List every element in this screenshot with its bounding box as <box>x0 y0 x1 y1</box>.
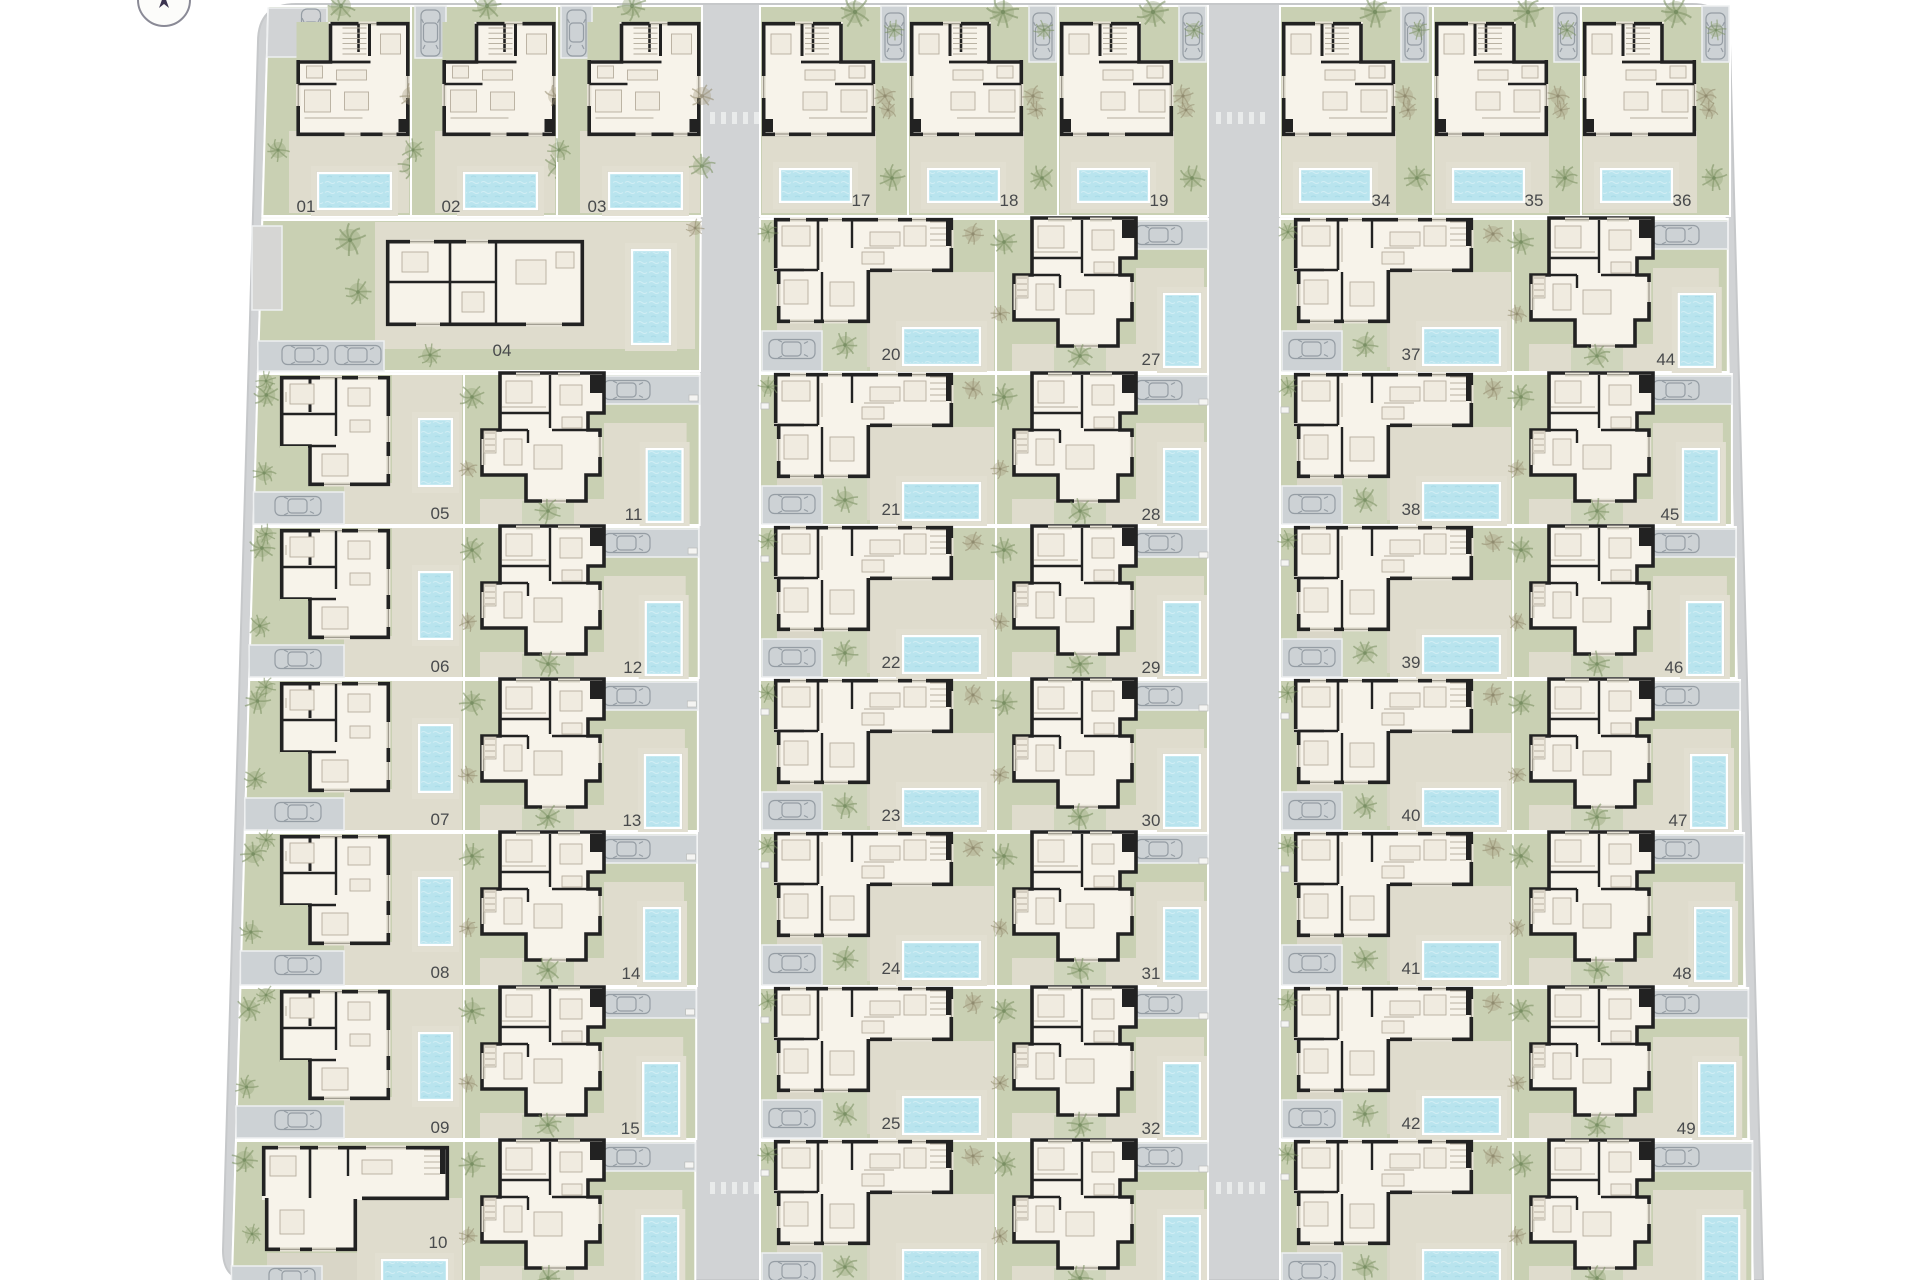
svg-text:41: 41 <box>1402 959 1421 978</box>
svg-text:42: 42 <box>1402 1114 1421 1133</box>
svg-text:08: 08 <box>431 963 450 982</box>
svg-text:18: 18 <box>1000 191 1019 210</box>
svg-text:22: 22 <box>882 653 901 672</box>
svg-text:46: 46 <box>1664 658 1683 677</box>
svg-text:19: 19 <box>1150 191 1169 210</box>
svg-text:14: 14 <box>622 964 641 983</box>
svg-text:23: 23 <box>882 806 901 825</box>
svg-text:24: 24 <box>882 959 901 978</box>
svg-text:15: 15 <box>621 1119 640 1138</box>
svg-text:39: 39 <box>1402 653 1421 672</box>
svg-text:27: 27 <box>1142 350 1161 369</box>
svg-text:40: 40 <box>1402 806 1421 825</box>
svg-text:12: 12 <box>623 658 642 677</box>
svg-text:28: 28 <box>1142 505 1161 524</box>
svg-text:36: 36 <box>1673 191 1692 210</box>
svg-text:45: 45 <box>1660 505 1679 524</box>
svg-text:47: 47 <box>1669 811 1688 830</box>
svg-text:48: 48 <box>1673 964 1692 983</box>
svg-text:10: 10 <box>429 1233 448 1252</box>
svg-text:07: 07 <box>431 810 450 829</box>
svg-text:17: 17 <box>852 191 871 210</box>
svg-text:02: 02 <box>442 197 461 216</box>
svg-text:31: 31 <box>1142 964 1161 983</box>
svg-text:34: 34 <box>1372 191 1391 210</box>
svg-text:29: 29 <box>1142 658 1161 677</box>
svg-text:06: 06 <box>431 657 450 676</box>
svg-text:11: 11 <box>625 505 643 524</box>
svg-text:25: 25 <box>882 1114 901 1133</box>
svg-text:35: 35 <box>1525 191 1544 210</box>
svg-text:13: 13 <box>622 811 641 830</box>
svg-text:20: 20 <box>882 345 901 364</box>
svg-text:49: 49 <box>1677 1119 1696 1138</box>
svg-text:37: 37 <box>1402 345 1421 364</box>
svg-text:01: 01 <box>297 197 316 216</box>
svg-text:38: 38 <box>1402 500 1421 519</box>
svg-text:32: 32 <box>1142 1119 1161 1138</box>
svg-text:21: 21 <box>882 500 901 519</box>
svg-text:05: 05 <box>431 504 450 523</box>
svg-text:03: 03 <box>588 197 607 216</box>
svg-text:04: 04 <box>493 341 512 360</box>
svg-text:30: 30 <box>1142 811 1161 830</box>
svg-text:09: 09 <box>431 1118 450 1137</box>
svg-text:44: 44 <box>1656 350 1675 369</box>
